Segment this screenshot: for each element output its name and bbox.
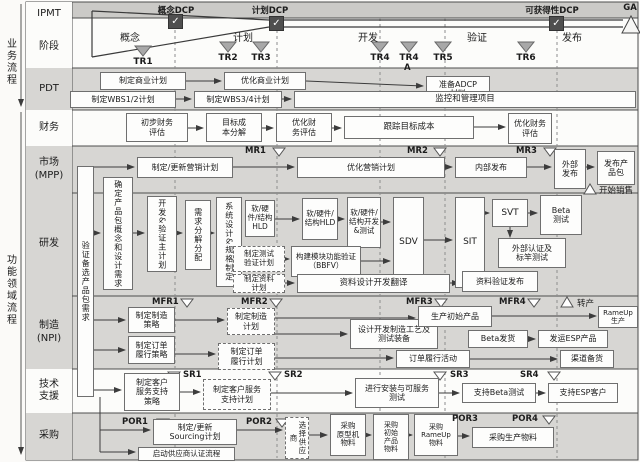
tr-marker-label-1: TR1 [133,57,152,67]
review-marker-mr3: MR3 [516,146,537,156]
review-marker-sr2: SR2 [284,370,303,380]
box-dev-verify-master-plan: 开发&验证主计划 [147,196,177,272]
review-marker-mfr2: MFR2 [241,297,268,307]
box-initial-financial-eval: 初步财务 评估 [126,113,188,142]
review-marker-por3: POR3 [452,414,478,424]
box-buy-initial-product-material: 采购 初始 产品 物料 [373,414,409,460]
tr-marker-label-5: TR4 [399,53,418,63]
box-make-test-verify-plan: 制定测试 验证计划 [233,246,285,272]
phase-label-5: 发布 [562,29,582,44]
review-marker-mr1: MR1 [245,146,266,156]
box-develop-business-plan: 制定商业计划 [100,72,186,90]
box-make-order-fulfill-plan: 制定订单 履行计划 [218,343,275,370]
lane-label-stage: 阶段 [26,26,72,68]
box-install-serviceability-test: 进行安装与可服务 测试 [355,378,439,408]
lane-label-support: 技术 支援 [26,369,72,413]
phase-label-1: 概念 [120,29,140,44]
box-target-cost-breakdown: 目标成 本分解 [206,113,262,142]
tr4a-suffix-label: A [404,63,411,73]
box-ship-esp-product: 发运ESP产品 [538,330,608,348]
box-doc-verify-release: 资料验证发布 [462,271,538,292]
phase-label-4: 验证 [467,29,487,44]
ga-triangle [622,16,640,33]
box-beta-shipment: Beta发货 [468,330,528,348]
box-channel-stocking: 渠道备货 [560,350,614,368]
box-monitor-manage-project: 监控和管理项目 [294,91,636,108]
box-buy-production-material: 采购生产物料 [472,427,554,448]
box-verify-candidate-pkg-req: 验证备选产品包需求 [77,166,94,397]
box-requirement-decompose-allocate: 需求分解分配 [185,200,211,270]
box-internal-release: 内部发布 [455,157,527,178]
tr-marker-label-2: TR2 [218,53,237,63]
lane-label-pdt: PDT [26,68,72,110]
plan-dcp-label: 计划DCP [252,4,289,16]
tr-marker-label-6: TR5 [433,53,452,63]
lane-label-ipmt: IPMT [26,2,72,26]
lane-label-mfg: 制造 (NPI) [26,296,72,369]
box-track-target-cost: 跟踪目标成本 [344,116,474,139]
box-define-pkg-concept-design-req: 确定产品包概念和设计需求 [103,177,133,290]
lane-label-finance: 财务 [26,110,72,146]
rail-functional-domain-label: 功能领域流程 [2,225,18,355]
box-make-order-fulfill-strategy: 制定订单 履行策略 [128,336,175,364]
box-optimize-financial-eval-1: 优化财 务评估 [276,113,332,142]
box-sw-hw-structure-hld-2: 软/硬件/结构HLD [302,198,338,240]
box-bbfv: 构建模块功能验证 （BBFV） [291,246,361,277]
lane-label-procure: 采购 [26,413,72,460]
start-sales-label: 开始销售 [599,184,633,196]
box-release-product-package: 发布产 品包 [597,151,635,185]
review-marker-por4: POR4 [512,414,538,424]
box-doc-design-dev-translate: 资料设计开发翻译 [297,274,450,293]
availability-dcp-label: 可获得性DCP [525,4,579,16]
box-make-service-support-strategy: 制定客户 服务支持 策略 [124,373,180,411]
box-develop-wbs34-plan: 制定WBS3/4计划 [194,91,282,108]
review-marker-mfr4: MFR4 [499,297,526,307]
tr-marker-label-3: TR3 [251,53,270,63]
box-optimize-financial-eval-2: 优化财务 评估 [508,113,552,144]
box-external-release: 外部 发布 [554,149,586,189]
box-svt: SVT [492,199,528,227]
concept-dcp-checkbox-icon: ✓ [168,14,183,29]
phase-label-3: 开发 [358,29,378,44]
box-support-esp-customer: 支持ESP客户 [548,383,618,403]
box-optimize-marketing-plan: 优化营销计划 [297,157,445,178]
box-external-cert-benchmark-test: 外部认证及 标竿测试 [498,238,566,268]
box-develop-wbs12-plan: 制定WBS1/2计划 [70,91,176,108]
lane-label-rnd: 研发 [26,193,72,296]
box-order-fulfill-activity: 订单履行活动 [396,350,470,368]
box-optimize-business-plan: 优化商业计划 [224,72,306,90]
review-marker-sr4: SR4 [520,370,539,380]
box-sw-hw-structure-hld-1: 软/硬件/结构HLD [245,200,275,237]
box-make-update-sourcing-plan: 制定/更新 Sourcing计划 [153,419,237,445]
tr-marker-label-4: TR4 [370,53,389,63]
phase-label-2: 计划 [233,29,253,44]
availability-dcp-checkbox-icon: ✓ [549,16,564,31]
box-produce-initial-product: 生产初始产品 [418,306,492,327]
rail-business-process-label: 业务流程 [2,14,18,110]
box-make-update-marketing-plan: 制定/更新营销计划 [137,157,233,178]
box-beta-test: Beta 测试 [540,195,582,235]
box-make-service-support-plan: 制定客户服务 支持计划 [203,379,271,410]
review-marker-sr1: SR1 [183,370,202,380]
box-support-beta-test: 支持Beta测试 [462,383,536,403]
plan-dcp-checkbox-icon: ✓ [269,16,284,31]
lane-label-market: 市场 (MPP) [26,146,72,193]
review-marker-por1: POR1 [122,417,148,427]
review-marker-mr2: MR2 [407,146,428,156]
box-rampup-production: RameUp生产 [598,306,638,328]
review-marker-por2: POR2 [246,417,272,427]
review-marker-mfr3: MFR3 [406,297,433,307]
box-select-supplier: 选择供应商 [285,417,309,459]
ga-label: GA [623,3,637,13]
box-make-doc-plan: 制定资料 计划 [233,274,285,293]
ipd-process-diagram: 业务流程 功能领域流程 IPMT阶段PDT财务市场 (MPP)研发制造 (NPI… [0,0,640,462]
box-sw-hw-structure-dev-test: 软/硬件/结构开发&测试 [347,197,381,248]
tr-marker-label-7: TR6 [516,53,535,63]
box-start-supplier-cert-process: 启动供应商认证流程 [138,447,235,461]
box-make-mfg-strategy: 制定制造 策略 [128,307,175,333]
transfer-production-label: 转产 [577,297,594,309]
review-marker-mfr1: MFR1 [152,297,179,307]
box-buy-prototype-material: 采购 原型机 物料 [330,414,366,456]
box-make-mfg-plan: 制定制造 计划 [227,308,275,335]
review-marker-sr3: SR3 [450,370,469,380]
